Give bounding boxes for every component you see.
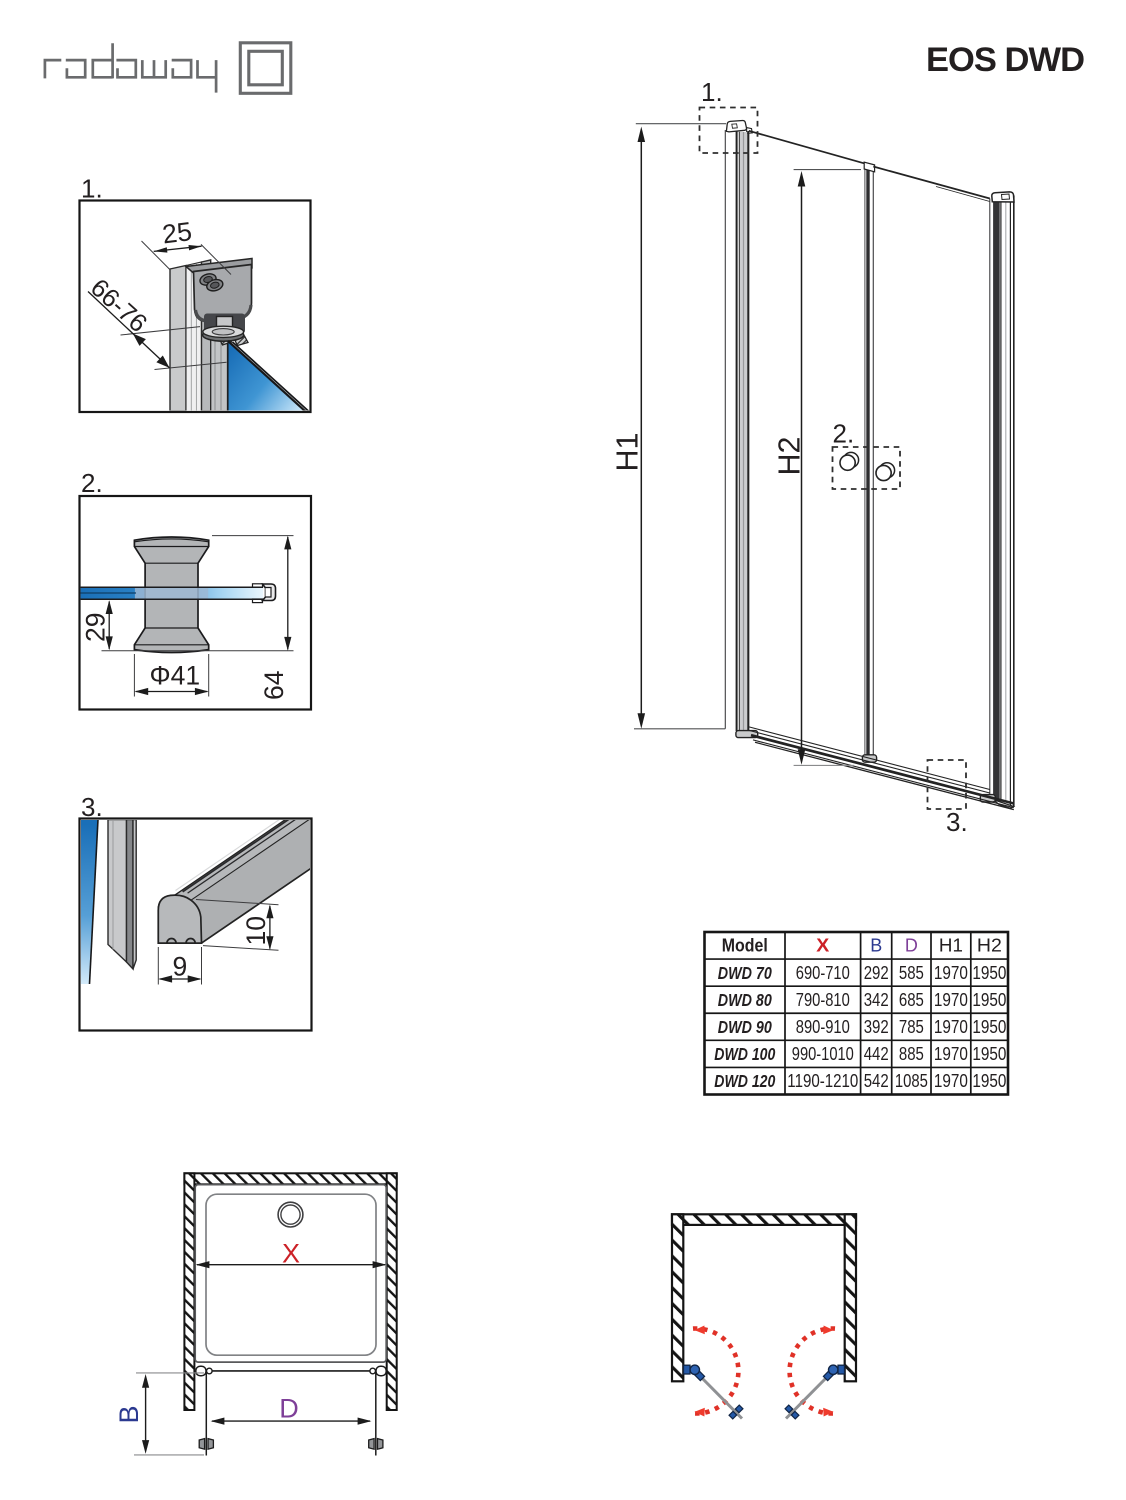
- svg-text:1970: 1970: [934, 1016, 968, 1037]
- svg-text:DWD 100: DWD 100: [714, 1044, 775, 1064]
- svg-text:H1: H1: [611, 433, 645, 472]
- svg-text:H1: H1: [939, 935, 963, 956]
- svg-text:2.: 2.: [833, 419, 855, 449]
- svg-text:690-710: 690-710: [796, 962, 850, 983]
- svg-text:1950: 1950: [972, 989, 1006, 1010]
- svg-text:1085: 1085: [895, 1070, 928, 1091]
- svg-text:790-810: 790-810: [796, 989, 850, 1010]
- svg-text:2.: 2.: [81, 468, 103, 498]
- svg-text:DWD 80: DWD 80: [718, 990, 772, 1010]
- svg-text:785: 785: [899, 1016, 924, 1037]
- svg-text:D: D: [905, 935, 918, 956]
- svg-text:64: 64: [259, 671, 289, 700]
- svg-text:342: 342: [864, 989, 889, 1010]
- svg-text:1190-1210: 1190-1210: [787, 1070, 858, 1091]
- svg-text:442: 442: [864, 1043, 889, 1064]
- svg-text:1950: 1950: [972, 1016, 1006, 1037]
- svg-text:3.: 3.: [946, 807, 968, 837]
- svg-text:292: 292: [864, 962, 889, 983]
- svg-text:B: B: [870, 935, 882, 956]
- svg-text:1970: 1970: [934, 1070, 968, 1091]
- svg-text:1950: 1950: [972, 1043, 1006, 1064]
- svg-text:29: 29: [81, 613, 111, 642]
- svg-text:885: 885: [899, 1043, 924, 1064]
- svg-text:1.: 1.: [701, 77, 723, 107]
- svg-text:890-910: 890-910: [796, 1016, 850, 1037]
- svg-text:H2: H2: [977, 935, 1002, 956]
- svg-text:D: D: [279, 1394, 299, 1424]
- svg-text:9: 9: [173, 952, 188, 982]
- svg-text:1.: 1.: [81, 174, 103, 204]
- svg-text:1970: 1970: [934, 989, 968, 1010]
- svg-text:392: 392: [864, 1016, 889, 1037]
- svg-text:685: 685: [899, 989, 924, 1010]
- svg-text:1970: 1970: [934, 962, 968, 983]
- svg-text:1950: 1950: [972, 962, 1006, 983]
- svg-text:1950: 1950: [972, 1070, 1006, 1091]
- svg-text:Φ41: Φ41: [150, 661, 201, 691]
- svg-text:10: 10: [241, 916, 271, 945]
- svg-text:DWD 70: DWD 70: [718, 963, 772, 983]
- svg-text:B: B: [114, 1405, 144, 1423]
- svg-text:X: X: [816, 935, 830, 956]
- svg-text:DWD 120: DWD 120: [714, 1071, 775, 1091]
- svg-text:542: 542: [864, 1070, 889, 1091]
- svg-text:990-1010: 990-1010: [792, 1043, 854, 1064]
- svg-text:H2: H2: [773, 437, 807, 476]
- svg-text:1970: 1970: [934, 1043, 968, 1064]
- svg-text:585: 585: [899, 962, 924, 983]
- svg-text:DWD 90: DWD 90: [718, 1017, 772, 1037]
- svg-text:EOS DWD: EOS DWD: [926, 41, 1085, 79]
- svg-text:25: 25: [161, 216, 194, 249]
- svg-text:Model: Model: [722, 935, 768, 956]
